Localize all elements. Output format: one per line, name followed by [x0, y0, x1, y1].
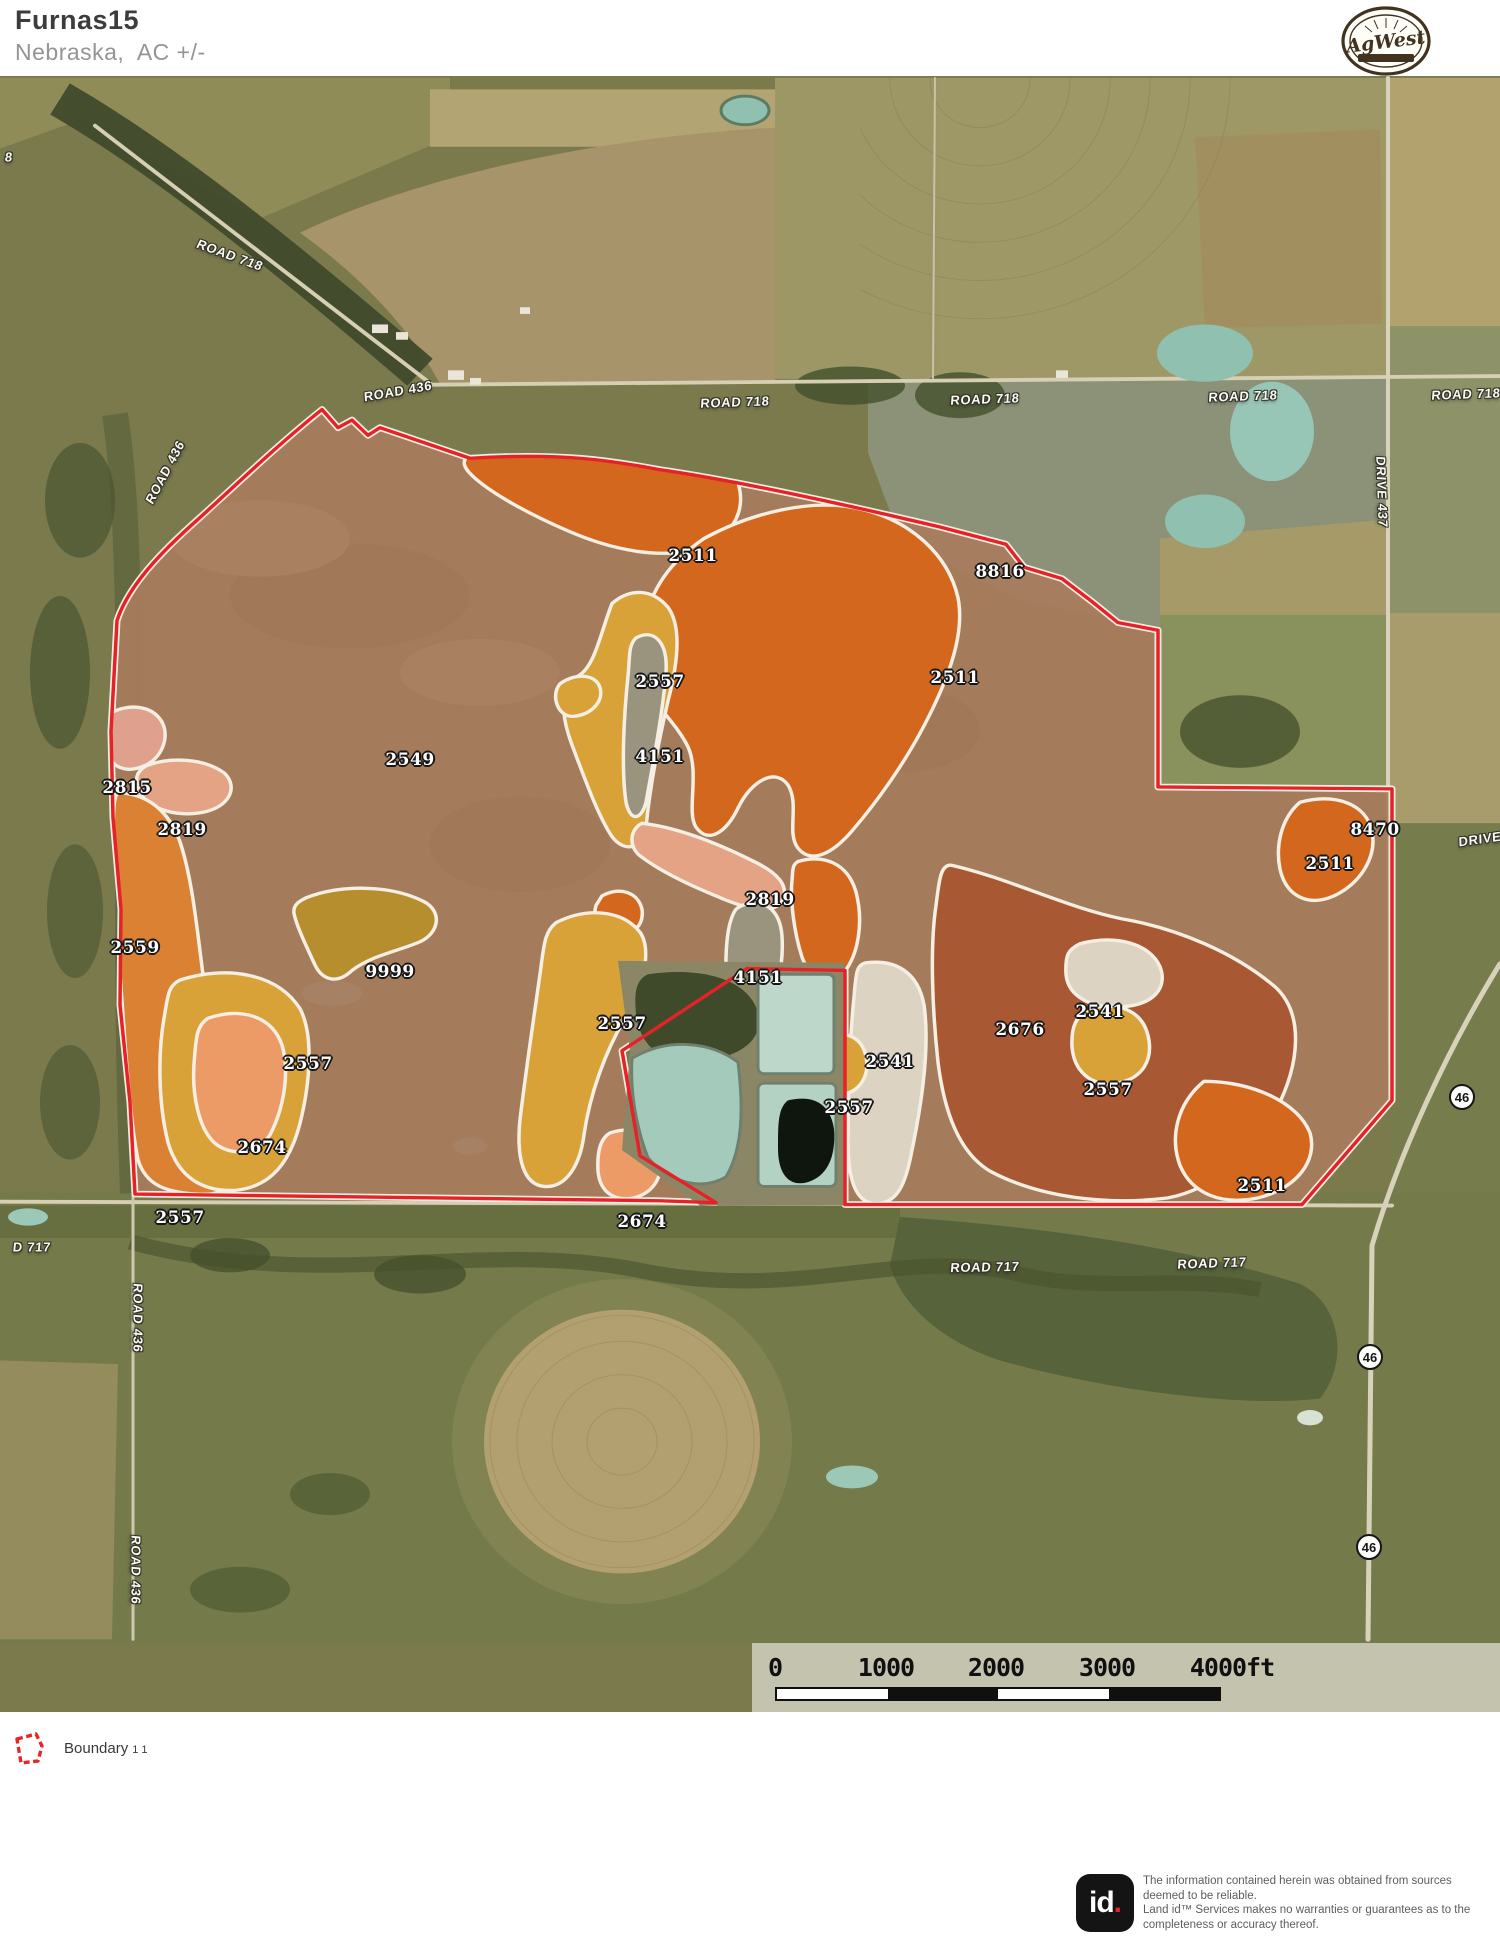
scale-segment [777, 1689, 888, 1699]
header: Furnas15 Nebraska, AC +/- [15, 5, 206, 66]
landid-logo-dot: . [1114, 1888, 1121, 1918]
scale-tick-label: 2000 [968, 1653, 1024, 1682]
aerial-map-canvas [0, 76, 1500, 1712]
scale-bar: 01000200030004000ft [752, 1643, 1500, 1712]
scale-bar-segments [775, 1687, 1221, 1701]
scale-tick-label: 0 [768, 1653, 782, 1682]
soil-region-2557 [1072, 1006, 1150, 1084]
legend-entry: Boundary1 1 [64, 1740, 148, 1758]
landid-logo: id. [1076, 1874, 1134, 1932]
legend: Boundary1 1 [12, 1731, 148, 1767]
report-page: Furnas15 Nebraska, AC +/- AgWest [0, 0, 1500, 1941]
map-viewport [0, 76, 1500, 1712]
legend-label: Boundary [64, 1740, 128, 1757]
scale-tick-label: 3000 [1079, 1653, 1135, 1682]
pivot-field [484, 1310, 760, 1574]
scale-segment [998, 1689, 1109, 1699]
landid-logo-text: id [1089, 1888, 1114, 1918]
disclaimer-line2: Land id™ Services makes no warranties or… [1143, 1903, 1495, 1932]
agwest-logo: AgWest [1336, 4, 1436, 78]
page-subtitle: Nebraska, AC +/- [15, 39, 206, 66]
page-title: Furnas15 [15, 5, 206, 36]
boundary-swatch-icon [12, 1731, 46, 1767]
scale-tick-label: 4000ft [1190, 1653, 1274, 1682]
scale-tick-label: 1000 [858, 1653, 914, 1682]
soil-region-2674 [194, 1013, 286, 1151]
footer: id. The information contained herein was… [1076, 1874, 1495, 1932]
lagoon-area [618, 961, 845, 1206]
disclaimer-text: The information contained herein was obt… [1143, 1874, 1495, 1932]
legend-suffix: 1 1 [132, 1744, 147, 1756]
disclaimer-line1: The information contained herein was obt… [1143, 1874, 1495, 1903]
scale-segment [888, 1689, 998, 1699]
soil-region-2541 [1066, 940, 1162, 1007]
scale-segment [1109, 1689, 1219, 1699]
